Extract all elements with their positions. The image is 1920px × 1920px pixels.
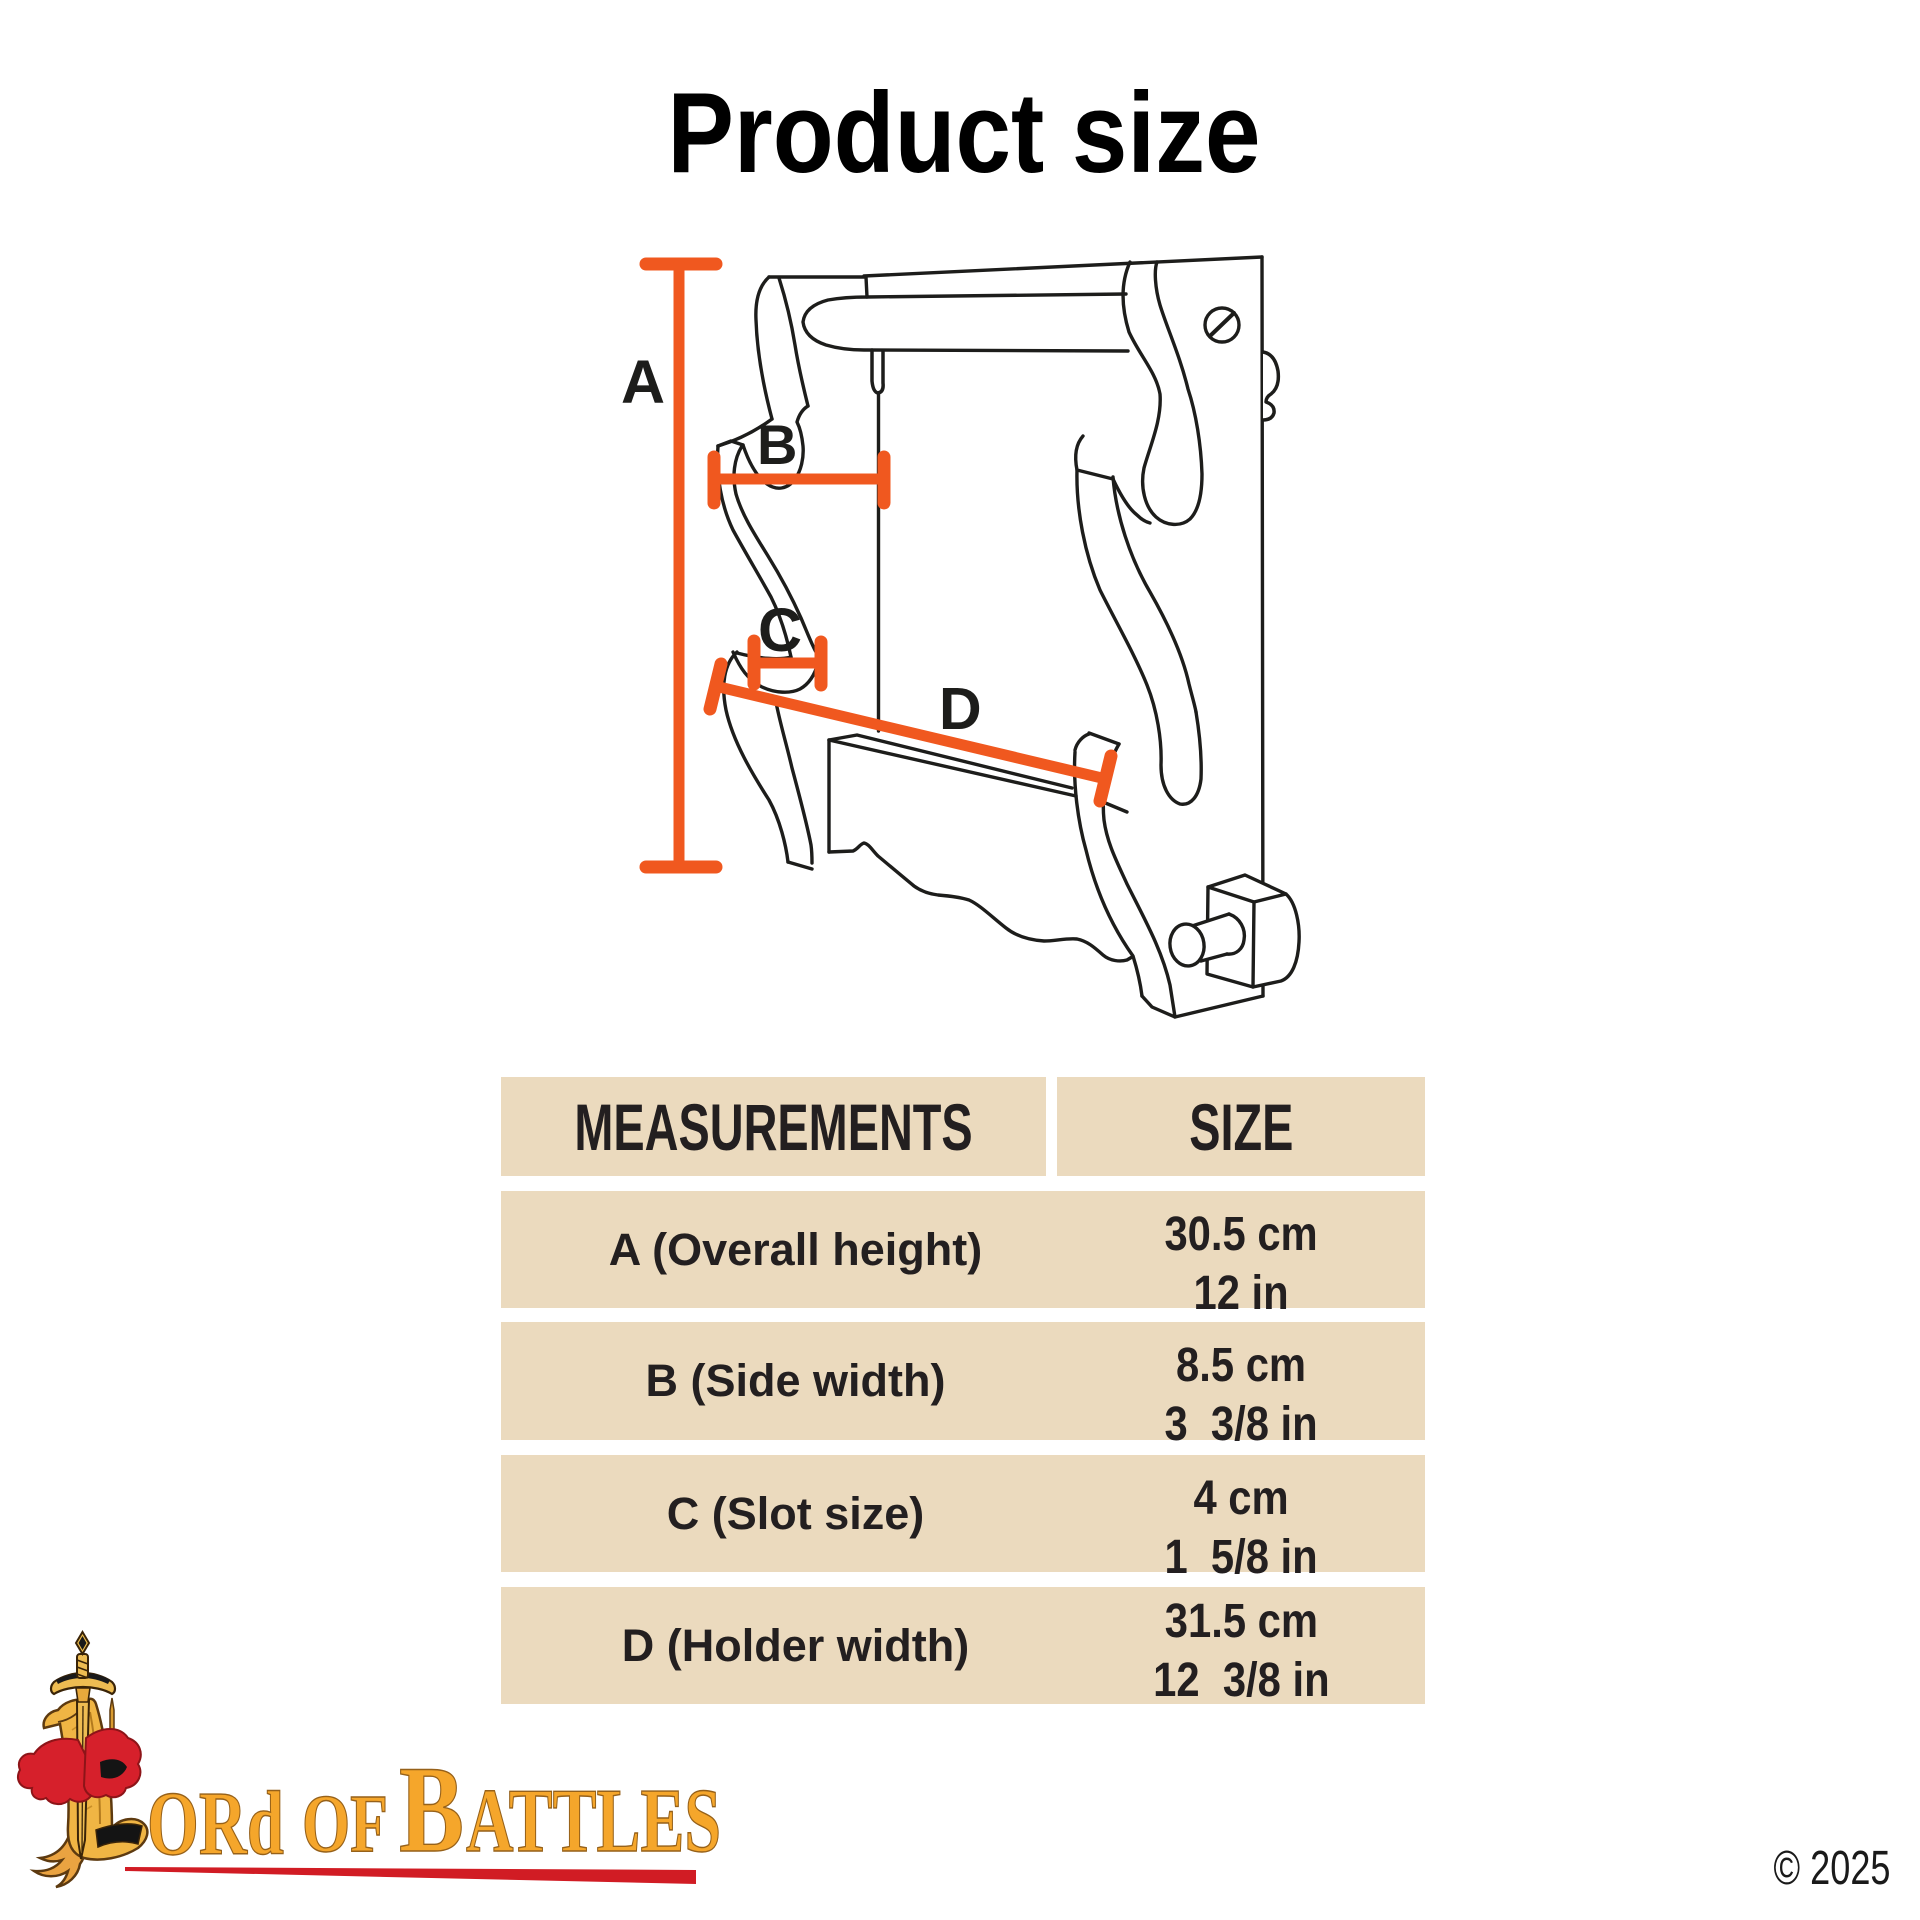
svg-text:C: C — [758, 596, 802, 664]
svg-text:B: B — [757, 413, 797, 476]
svg-text:OF: OF — [302, 1777, 388, 1869]
svg-text:A: A — [621, 348, 665, 416]
svg-text:ORd: ORd — [147, 1773, 284, 1874]
svg-text:ATTLES: ATTLES — [466, 1770, 721, 1871]
svg-text:D: D — [939, 676, 982, 742]
svg-text:B: B — [399, 1741, 464, 1878]
